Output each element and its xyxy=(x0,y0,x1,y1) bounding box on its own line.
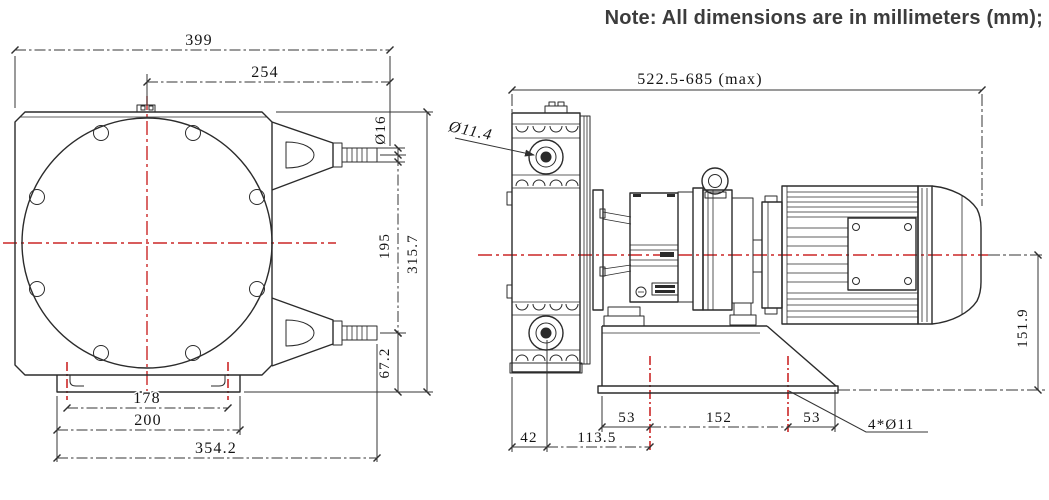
dim-face-to-port-label: 42 xyxy=(520,430,537,446)
pump-dimension-drawing: Note: All dimensions are in millimeters … xyxy=(0,0,1049,500)
dim-center-height-label: 151.9 xyxy=(1015,308,1031,348)
dim-overall-height-label: 315.7 xyxy=(405,234,421,274)
dim-port-to-base-label: 67.2 xyxy=(377,347,393,378)
dim-barb-diameter-label: Ø16 xyxy=(373,115,389,144)
dim-hole-offset-left-label: 53 xyxy=(618,410,635,426)
technical-drawing-page: Note: All dimensions are in millimeters … xyxy=(0,0,1049,500)
dim-foot-width-label: 200 xyxy=(134,412,162,429)
dim-port-to-hole-label: 113.5 xyxy=(577,430,616,446)
dim-hole-spacing-label: 152 xyxy=(706,410,732,426)
dim-overall-depth-label: 354.2 xyxy=(195,440,237,457)
dim-overall-length-label: 522.5-685 (max) xyxy=(637,71,763,88)
dim-overall-width-label: 399 xyxy=(185,32,213,49)
dim-foot-hole-spacing-label: 178 xyxy=(133,390,161,407)
units-note: Note: All dimensions are in millimeters … xyxy=(605,7,1043,29)
dim-port-spacing-label: 195 xyxy=(377,233,393,259)
dim-hole-offset-right-label: 53 xyxy=(803,410,820,426)
dim-center-to-edge-label: 254 xyxy=(251,64,279,81)
dim-mount-holes-label: 4*Ø11 xyxy=(868,417,914,433)
